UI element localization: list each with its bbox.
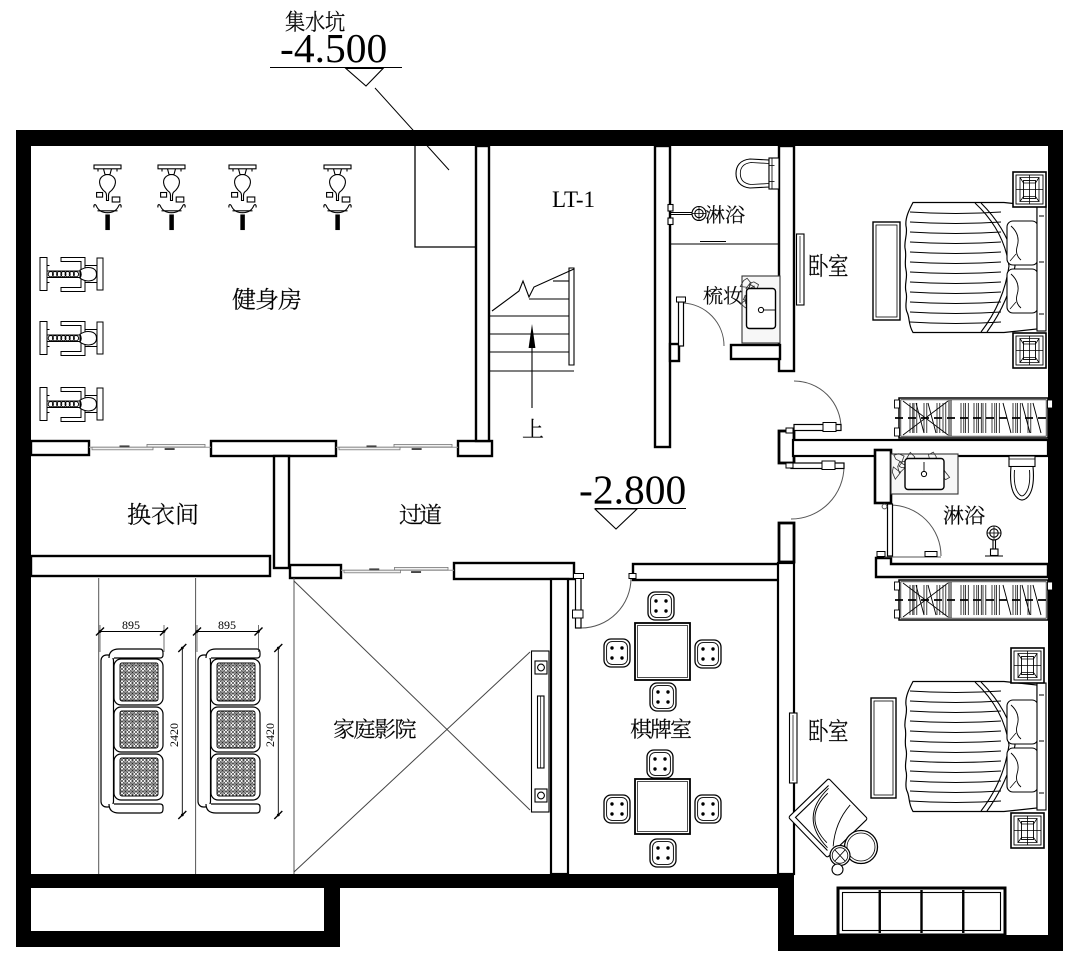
svg-text:2420: 2420 — [263, 723, 277, 747]
svg-text:-4.500: -4.500 — [280, 25, 387, 71]
svg-text:895: 895 — [218, 618, 236, 632]
svg-text:2420: 2420 — [167, 723, 181, 747]
svg-text:895: 895 — [122, 618, 140, 632]
svg-text:-2.800: -2.800 — [579, 467, 686, 513]
svg-text:LT-1: LT-1 — [552, 187, 595, 212]
